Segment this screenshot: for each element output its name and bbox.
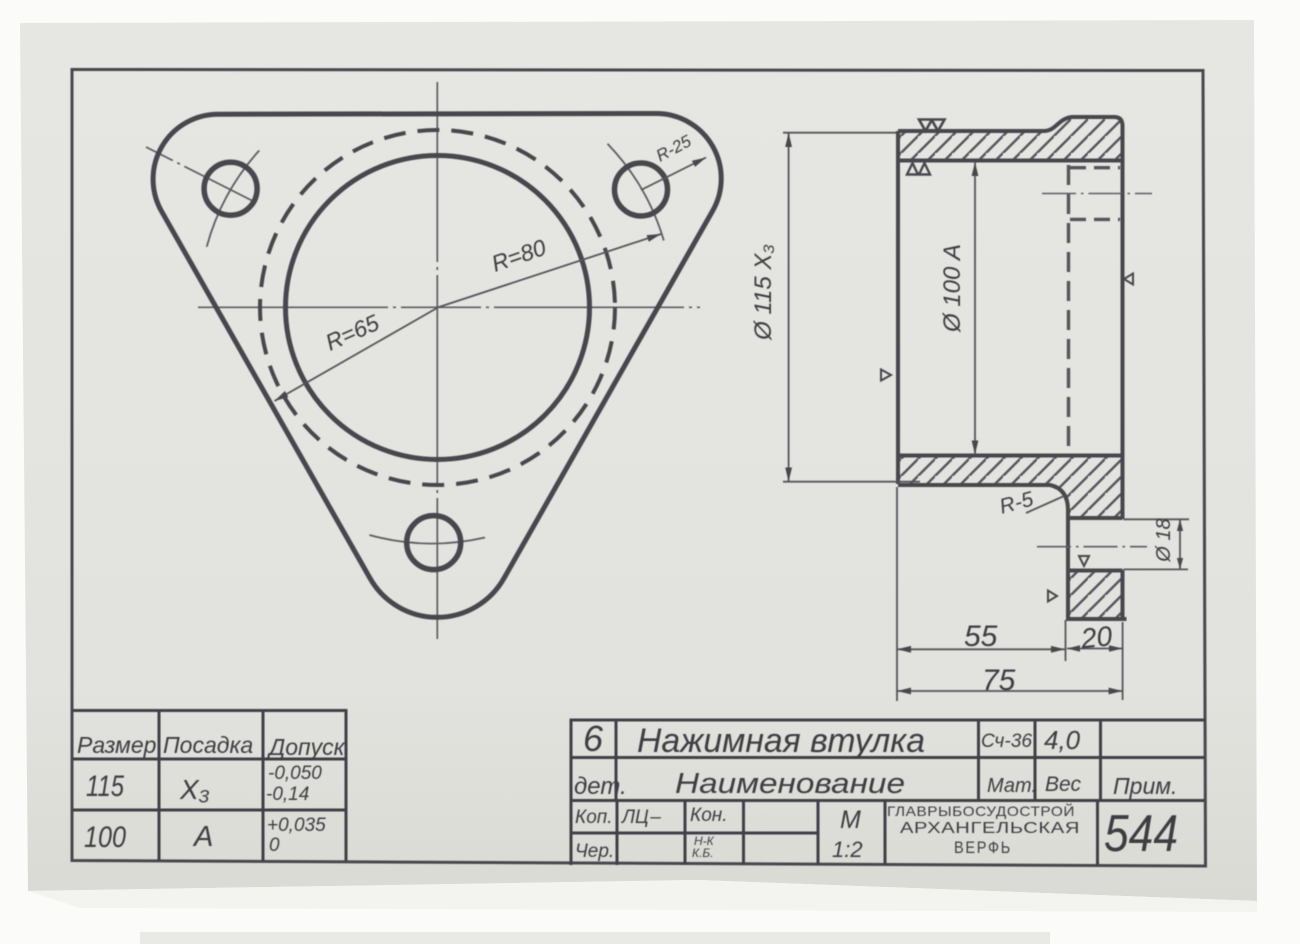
svg-text:ГЛАВРЫБОСУДОСТРОЙ: ГЛАВРЫБОСУДОСТРОЙ bbox=[887, 802, 1075, 819]
svg-text:Чер.: Чер. bbox=[575, 841, 614, 862]
svg-text:дет.: дет. bbox=[574, 773, 627, 800]
svg-text:А: А bbox=[192, 821, 213, 853]
svg-text:+0,035: +0,035 bbox=[267, 815, 326, 836]
svg-text:Вес: Вес bbox=[1045, 773, 1081, 796]
svg-text:1:2: 1:2 bbox=[832, 837, 863, 862]
svg-text:Ø 115 X₃: Ø 115 X₃ bbox=[750, 244, 777, 341]
svg-text:Нажимная втулка: Нажимная втулка bbox=[637, 722, 925, 760]
svg-text:100: 100 bbox=[84, 821, 126, 854]
svg-text:ВЕРФЬ: ВЕРФЬ bbox=[954, 838, 1012, 857]
svg-text:4,0: 4,0 bbox=[1044, 725, 1081, 755]
svg-text:6: 6 bbox=[583, 718, 604, 759]
svg-text:Посадка: Посадка bbox=[163, 732, 253, 758]
svg-text:115: 115 bbox=[86, 770, 124, 803]
svg-text:Ø 18: Ø 18 bbox=[1153, 518, 1175, 562]
svg-text:Сч-36: Сч-36 bbox=[981, 731, 1032, 752]
svg-text:Кон.: Кон. bbox=[690, 805, 728, 826]
svg-text:ЛЦ –: ЛЦ – bbox=[620, 807, 661, 828]
svg-text:Прим.: Прим. bbox=[1113, 773, 1177, 799]
svg-text:Наименование: Наименование bbox=[675, 768, 905, 800]
svg-text:0: 0 bbox=[269, 835, 280, 856]
svg-text:20: 20 bbox=[1078, 620, 1114, 654]
svg-text:АРХАНГЕЛЬСКАЯ: АРХАНГЕЛЬСКАЯ bbox=[900, 820, 1080, 837]
svg-text:Коп.: Коп. bbox=[575, 807, 613, 828]
svg-text:-0,14: -0,14 bbox=[266, 784, 309, 805]
svg-text:X₃: X₃ bbox=[179, 774, 210, 805]
svg-text:М: М bbox=[840, 806, 861, 834]
svg-text:Мат.: Мат. bbox=[987, 775, 1037, 797]
svg-text:Допуск: Допуск bbox=[266, 734, 346, 760]
svg-text:55: 55 bbox=[964, 620, 998, 653]
svg-text:Размер: Размер bbox=[77, 732, 157, 758]
svg-text:Ø 100 А: Ø 100 А bbox=[939, 244, 966, 333]
svg-text:-0,050: -0,050 bbox=[268, 763, 322, 784]
svg-text:К.Б.: К.Б. bbox=[692, 846, 714, 860]
svg-text:75: 75 bbox=[982, 664, 1016, 697]
svg-text:544: 544 bbox=[1104, 805, 1178, 863]
